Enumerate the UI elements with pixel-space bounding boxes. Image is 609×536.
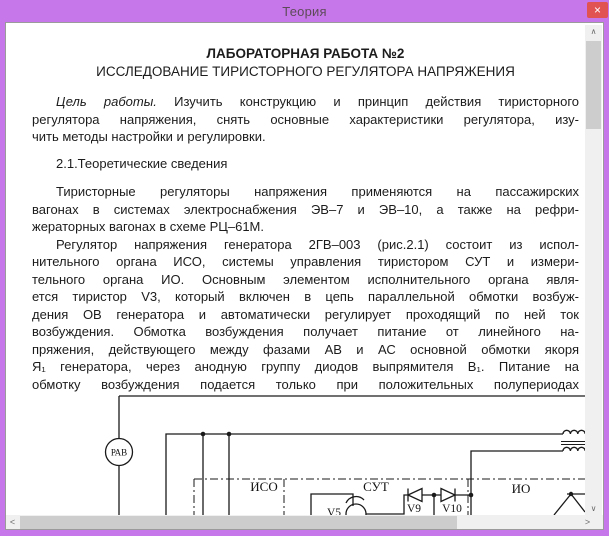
io-symbol-legs — [554, 494, 585, 515]
block-iso-label: ИСО — [250, 479, 277, 494]
text-line: ется тиристор V3, который включен в цепь… — [32, 288, 579, 306]
wire-second — [166, 434, 563, 515]
goal-lead: Цель работы. — [56, 94, 157, 109]
text-line: Тиристорные регуляторы напряжения примен… — [32, 183, 579, 201]
scroll-up-arrow-icon[interactable]: ∧ — [585, 25, 602, 38]
text-line: возбуждения. Обмотка возбуждения получае… — [32, 323, 579, 341]
diode-v10 — [441, 489, 455, 502]
scroll-right-arrow-icon[interactable]: > — [581, 515, 594, 530]
paragraph-intro: Тиристорные регуляторы напряжения примен… — [32, 183, 579, 236]
horizontal-scrollbar[interactable]: < > — [6, 515, 594, 530]
circuit-diagram: РАВ ИСО СУТ ИО V5 V9 V10 — [7, 386, 585, 515]
scrollbar-corner — [594, 515, 603, 530]
close-button[interactable]: × — [587, 2, 608, 18]
junction-dot — [201, 432, 206, 437]
text-line: тельного органа ИО. Основным элементом и… — [32, 271, 579, 289]
section-heading: 2.1.Теоретические сведения — [32, 155, 579, 173]
document-text: ЛАБОРАТОРНАЯ РАБОТА №2 ИССЛЕДОВАНИЕ ТИРИ… — [32, 43, 579, 393]
title-bar: Теория — [0, 0, 609, 22]
diode-v10-label: V10 — [442, 503, 462, 515]
text-line: Регулятор напряжения генератора 2ГВ–003 … — [32, 236, 579, 254]
diode-v9-label: V9 — [407, 503, 421, 515]
horizontal-scroll-thumb[interactable] — [20, 516, 457, 529]
block-io-label: ИО — [512, 481, 531, 496]
lab-title: ЛАБОРАТОРНАЯ РАБОТА №2 — [32, 43, 579, 63]
goal-lines: регулятора напряжения, снять основные ха… — [32, 111, 579, 146]
vertical-scrollbar[interactable]: ∧ ∨ — [585, 25, 602, 515]
paragraph-goal: Цель работы. Изучить конструкцию и принц… — [32, 93, 579, 146]
diode-v9 — [408, 489, 422, 502]
transformer-top-coil — [563, 430, 585, 434]
window-title: Теория — [282, 4, 326, 19]
paragraph-regulator: Регулятор напряжения генератора 2ГВ–003 … — [32, 236, 579, 394]
thyristor-gate-arc — [346, 497, 364, 503]
document-panel: ЛАБОРАТОРНАЯ РАБОТА №2 ИССЛЕДОВАНИЕ ТИРИ… — [5, 22, 604, 530]
text-line: пряжения, действующего между фазами АВ и… — [32, 341, 579, 359]
text-line: жераторных вагонах в схеме РЦ–61М. — [32, 218, 579, 236]
junction-dot — [569, 492, 573, 496]
text-line: чить методы настройки и регулировки. — [32, 128, 579, 146]
text-line: нительного органа ИСО, системы управлени… — [32, 253, 579, 271]
text-line: вагонах в системах электроснабжения ЭВ–7… — [32, 201, 579, 219]
junction-dot — [227, 432, 232, 437]
junction-dot — [432, 493, 437, 498]
transformer-core — [561, 442, 585, 445]
goal-lead-rest: Изучить конструкцию и принцип действия т… — [157, 94, 579, 109]
transformer-bottom-coil — [563, 447, 585, 451]
text-line: регулятора напряжения, снять основные ха… — [32, 111, 579, 129]
scroll-down-arrow-icon[interactable]: ∨ — [585, 502, 602, 515]
meter-label: РАВ — [111, 448, 127, 458]
thyristor-label: V5 — [327, 507, 341, 515]
scroll-left-arrow-icon[interactable]: < — [6, 515, 19, 530]
text-line: дения ОВ генератора и автоматически регу… — [32, 306, 579, 324]
vertical-scroll-thumb[interactable] — [586, 41, 601, 129]
text-line: Я₁ генератора, через анодную группу диод… — [32, 358, 579, 376]
lab-subtitle: ИССЛЕДОВАНИЕ ТИРИСТОРНОГО РЕГУЛЯТОРА НАП… — [32, 63, 579, 81]
junction-dot — [469, 493, 474, 498]
theory-window: Теория × ЛАБОРАТОРНАЯ РАБОТА №2 ИССЛЕДОВ… — [0, 0, 609, 536]
close-icon: × — [594, 3, 601, 17]
text-line: Цель работы. Изучить конструкцию и принц… — [32, 93, 579, 111]
thyristor-symbol — [346, 504, 366, 515]
block-sut-label: СУТ — [363, 479, 389, 494]
